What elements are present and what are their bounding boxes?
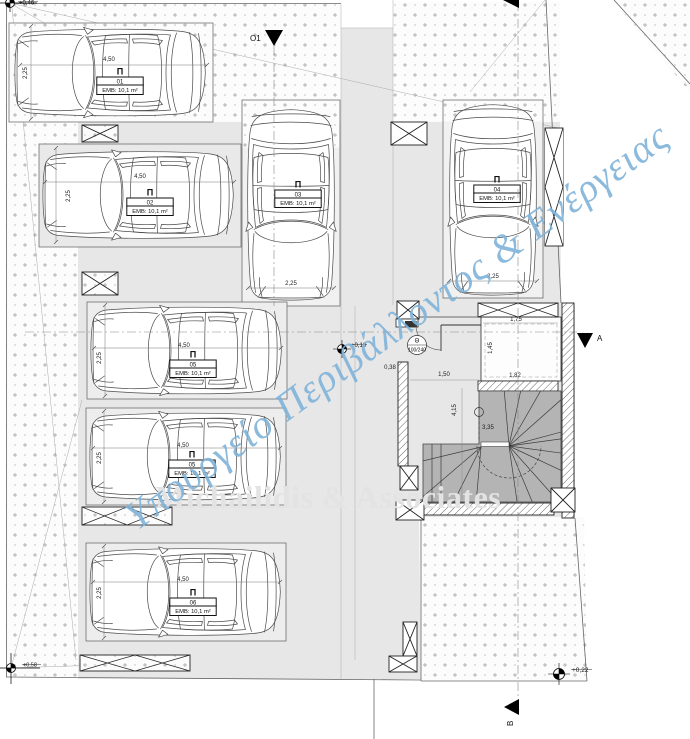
svg-text:1,45: 1,45	[488, 342, 494, 354]
svg-text:1,75: 1,75	[510, 317, 522, 323]
svg-text:2,25: 2,25	[97, 587, 103, 599]
svg-text:ΕΜΒ: 10,1 m²: ΕΜΒ: 10,1 m²	[479, 196, 515, 202]
svg-text:01: 01	[117, 79, 124, 85]
svg-text:03: 03	[295, 192, 302, 198]
svg-text:ΕΜΒ: 10,1 m²: ΕΜΒ: 10,1 m²	[132, 209, 168, 215]
svg-text:4,15: 4,15	[452, 404, 458, 416]
svg-text:+0,58: +0,58	[23, 663, 37, 669]
svg-text:2,25: 2,25	[97, 452, 103, 464]
svg-text:Π: Π	[494, 175, 501, 185]
svg-text:2,25: 2,25	[285, 281, 297, 287]
svg-text:B: B	[506, 721, 515, 726]
svg-text:4,50: 4,50	[177, 577, 189, 583]
svg-text:4,50: 4,50	[177, 443, 189, 449]
svg-text:3,35: 3,35	[482, 425, 494, 431]
svg-text:A: A	[597, 334, 603, 343]
svg-text:04: 04	[494, 187, 501, 193]
svg-text:ΕΜΒ: 10,1 m²: ΕΜΒ: 10,1 m²	[175, 371, 211, 377]
svg-text:ΕΜΒ: 10,1 m²: ΕΜΒ: 10,1 m²	[280, 201, 316, 207]
svg-text:2,25: 2,25	[23, 67, 29, 79]
svg-text:02: 02	[147, 200, 154, 206]
svg-text:4,50: 4,50	[134, 174, 146, 180]
svg-text:Π: Π	[117, 67, 124, 77]
svg-text:1,82: 1,82	[509, 373, 521, 379]
svg-text:Π: Π	[147, 188, 154, 198]
svg-text:2,25: 2,25	[66, 190, 72, 202]
svg-text:O1: O1	[250, 34, 261, 43]
svg-text:100/240: 100/240	[408, 348, 426, 354]
svg-text:06: 06	[190, 600, 197, 606]
svg-text:4,50: 4,50	[178, 343, 190, 349]
svg-text:ΕΜΒ: 10,1 m²: ΕΜΒ: 10,1 m²	[175, 609, 211, 615]
svg-text:ΕΜΒ: 10,1 m²: ΕΜΒ: 10,1 m²	[102, 88, 138, 94]
svg-text:4,50: 4,50	[103, 57, 115, 63]
svg-text:Π: Π	[190, 588, 197, 598]
svg-text:2,25: 2,25	[97, 352, 103, 364]
svg-text:Π: Π	[190, 350, 197, 360]
svg-text:Π: Π	[295, 180, 302, 190]
svg-text:0,38: 0,38	[384, 365, 396, 371]
svg-text:1,50: 1,50	[438, 372, 450, 378]
svg-text:+0,22: +0,22	[572, 667, 589, 674]
svg-text:05: 05	[190, 362, 197, 368]
